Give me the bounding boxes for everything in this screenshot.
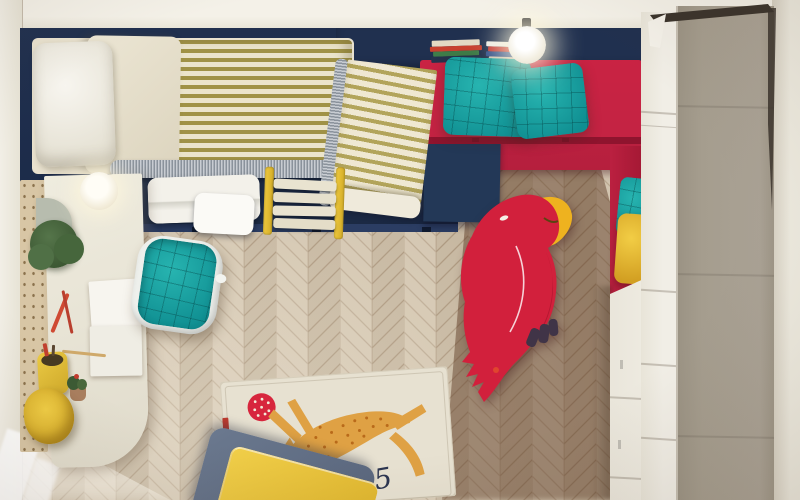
wardrobe-seam xyxy=(678,273,774,277)
pencil-in-cup xyxy=(52,345,56,356)
panel-seam xyxy=(641,111,678,116)
plant-foliage xyxy=(54,234,84,264)
parrot-body xyxy=(461,195,572,402)
parrot-rug xyxy=(452,188,578,420)
panel-seam xyxy=(641,125,678,129)
paper-stack xyxy=(90,326,143,377)
plant-foliage xyxy=(28,244,54,270)
wardrobe-seam xyxy=(678,435,774,439)
pendant-globe-light xyxy=(508,26,546,64)
platform-foot xyxy=(422,227,431,232)
bench-zip-tag xyxy=(562,138,569,142)
ladder-rung xyxy=(273,218,335,230)
potted-plant xyxy=(28,216,86,274)
chair-cushion xyxy=(136,236,219,331)
wardrobe-top-panel xyxy=(676,6,774,500)
towel-small xyxy=(193,192,255,235)
bench-zip-tag xyxy=(472,138,479,142)
ladder-rung xyxy=(273,178,336,191)
wardrobe-seam xyxy=(678,105,774,109)
cactus xyxy=(77,379,87,390)
cactus-flower xyxy=(74,374,79,379)
room-render: 5 xyxy=(0,0,800,500)
bed2-striped-blanket xyxy=(332,59,438,203)
ladder-rung xyxy=(273,192,336,204)
drawer-handle xyxy=(618,440,621,449)
bunk-ladder xyxy=(263,165,348,242)
wardrobe-front-column xyxy=(641,12,678,500)
ladder-rail-right xyxy=(334,167,346,239)
ladder-rung xyxy=(273,205,336,216)
teal-cushion-right xyxy=(510,62,590,140)
panel-seam xyxy=(641,363,678,368)
bed1-pillow xyxy=(32,41,116,168)
desk-chair xyxy=(128,232,226,337)
panel-seam xyxy=(641,289,678,294)
desk-globe-lamp xyxy=(80,172,118,210)
wall-right xyxy=(772,0,800,500)
parrot-rug-tag xyxy=(493,367,499,373)
drawer-handle xyxy=(620,360,623,369)
panel-seam xyxy=(641,437,678,442)
